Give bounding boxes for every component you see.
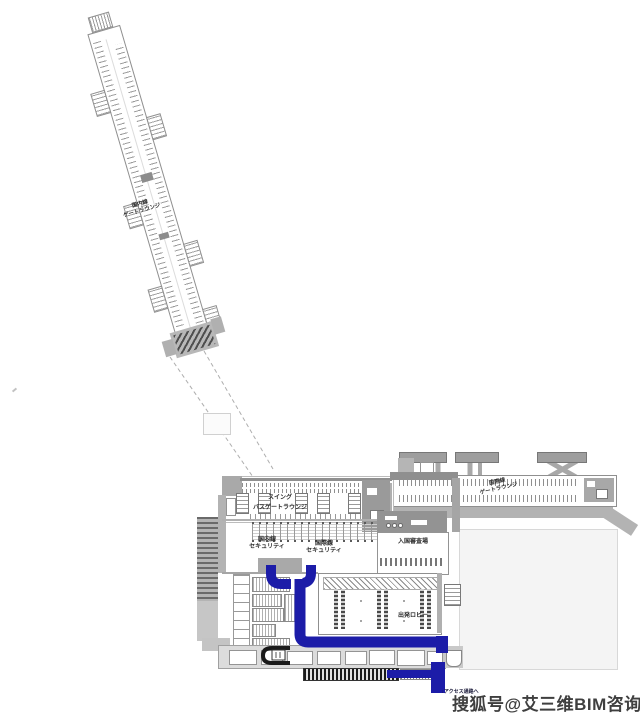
stall-strip bbox=[233, 574, 250, 648]
jet-bridge-cap bbox=[537, 452, 587, 463]
detail bbox=[587, 481, 595, 487]
curbside-strip bbox=[197, 517, 218, 641]
column-dot bbox=[360, 600, 362, 602]
domestic-security-line2: セキュリティ bbox=[247, 544, 287, 551]
dashed-connector-line bbox=[204, 351, 273, 469]
room-box bbox=[229, 650, 257, 665]
checkin-island bbox=[420, 589, 431, 629]
pier-end-block bbox=[584, 478, 614, 502]
column-dot bbox=[403, 600, 405, 602]
stray-mark bbox=[12, 388, 17, 393]
immigration-block bbox=[377, 511, 447, 532]
apron-region bbox=[459, 529, 618, 670]
shop-box bbox=[252, 624, 276, 637]
terminal-top-wall-right bbox=[390, 472, 458, 480]
wall-line bbox=[222, 519, 392, 521]
terminal-left-wall bbox=[218, 495, 226, 573]
people-mover-strip bbox=[303, 668, 399, 681]
detail bbox=[596, 489, 608, 499]
room-box bbox=[427, 651, 443, 665]
departure-lobby-label: 出発ロビー bbox=[391, 613, 435, 620]
room-box bbox=[345, 651, 367, 665]
shop-box bbox=[284, 594, 296, 622]
wall-line bbox=[437, 573, 442, 633]
room-box bbox=[287, 651, 313, 665]
international-security-label: 国際線 セキュリティ bbox=[304, 541, 344, 555]
route-fork-right bbox=[303, 565, 311, 583]
booth-circles bbox=[386, 523, 403, 528]
escalator-strip bbox=[400, 669, 440, 680]
shop-box bbox=[252, 577, 290, 592]
seat-rows bbox=[399, 495, 579, 502]
checkin-island bbox=[377, 589, 388, 629]
corridor-block bbox=[258, 558, 302, 572]
room-box bbox=[317, 651, 341, 665]
bus-gate-box bbox=[348, 493, 361, 514]
terminal-bottom-band bbox=[218, 645, 446, 669]
immigration-label: 入国審査場 bbox=[391, 539, 435, 546]
floor-plan-canvas: 国内線 ゲートラウンジ 国際線 ゲートラウンジ スイング バスゲートラウンジ 国… bbox=[0, 0, 640, 724]
room-box bbox=[369, 650, 395, 665]
detail bbox=[385, 516, 397, 520]
immigration-booth-row bbox=[380, 558, 444, 566]
jet-bridge-cap bbox=[455, 452, 499, 463]
room-box bbox=[397, 650, 425, 666]
international-security-line2: セキュリティ bbox=[304, 548, 344, 555]
domestic-pier bbox=[87, 25, 212, 351]
column-dot bbox=[403, 620, 405, 622]
checkin-island bbox=[334, 589, 345, 629]
shop-box bbox=[252, 608, 284, 622]
terminal-right-wall bbox=[452, 478, 460, 532]
exit-door bbox=[446, 650, 462, 667]
curbside-hatching bbox=[197, 517, 218, 601]
room-box bbox=[444, 584, 461, 606]
domestic-security-label: 国内線 セキュリティ bbox=[247, 537, 287, 551]
connector-structure bbox=[203, 413, 231, 435]
column-dot bbox=[360, 620, 362, 622]
room-box bbox=[261, 650, 283, 665]
swing-lounge-label-line2: バスゲートラウンジ bbox=[234, 505, 326, 512]
seat-rows bbox=[93, 41, 184, 327]
watermark-text: 搜狐号@艾三维BIM咨询 bbox=[452, 695, 640, 715]
swing-lounge-label-line1: スイング bbox=[255, 495, 305, 502]
shop-box bbox=[252, 594, 282, 607]
detail bbox=[411, 520, 427, 525]
detail bbox=[367, 488, 377, 495]
terminus-hatching bbox=[173, 325, 215, 355]
